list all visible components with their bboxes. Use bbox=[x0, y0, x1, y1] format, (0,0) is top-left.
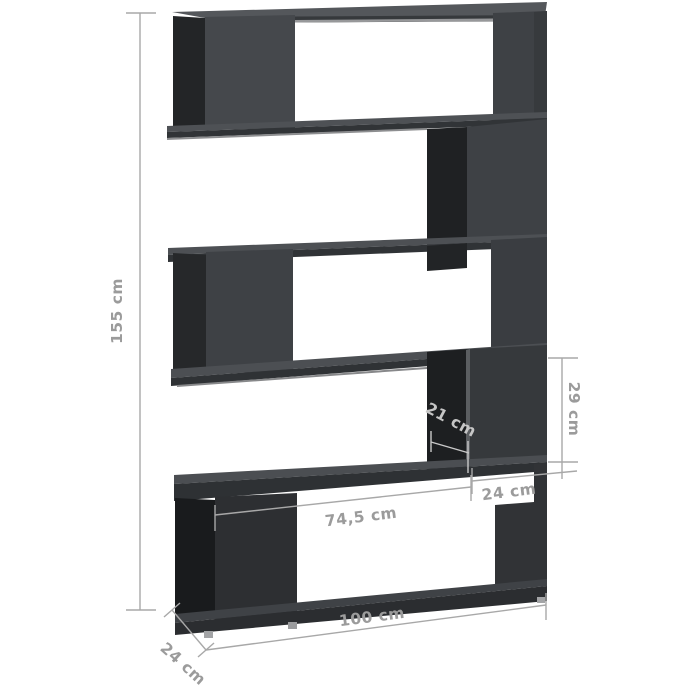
depth-label: 24 cm bbox=[157, 639, 210, 689]
tier2-divider-interior bbox=[427, 127, 467, 246]
foot-left bbox=[204, 631, 213, 638]
tier1-left-panel bbox=[205, 15, 295, 130]
tier3-upper-right-interior bbox=[427, 243, 467, 271]
tier2-right-panel bbox=[467, 119, 547, 244]
right-section-label: 24 cm bbox=[481, 480, 538, 505]
tier5-left-interior bbox=[175, 498, 215, 616]
tier1-left-interior bbox=[173, 16, 205, 129]
bookcase-illustration bbox=[167, 2, 547, 638]
tier3-left-interior bbox=[173, 253, 206, 372]
tier4-right-panel bbox=[470, 345, 547, 464]
dimension-diagram: 155 cm 100 cm 24 cm 74,5 cm 24 cm 29 cm bbox=[0, 0, 700, 700]
tier3-right-panel bbox=[491, 237, 547, 349]
tier1-right-side-edge bbox=[534, 11, 547, 124]
height-label: 155 cm bbox=[108, 278, 126, 344]
compartment-height-label: 29 cm bbox=[565, 382, 583, 437]
foot-middle bbox=[288, 622, 297, 629]
diagram-canvas: 155 cm 100 cm 24 cm 74,5 cm 24 cm 29 cm bbox=[0, 0, 700, 700]
tier5-left-panel bbox=[215, 493, 297, 620]
tier3-left-panel bbox=[206, 249, 293, 374]
inner-width-label: 74,5 cm bbox=[324, 504, 398, 531]
foot-right bbox=[537, 597, 545, 603]
dimension-height: 155 cm bbox=[108, 13, 156, 610]
dimension-compartment-height: 29 cm bbox=[548, 358, 583, 462]
